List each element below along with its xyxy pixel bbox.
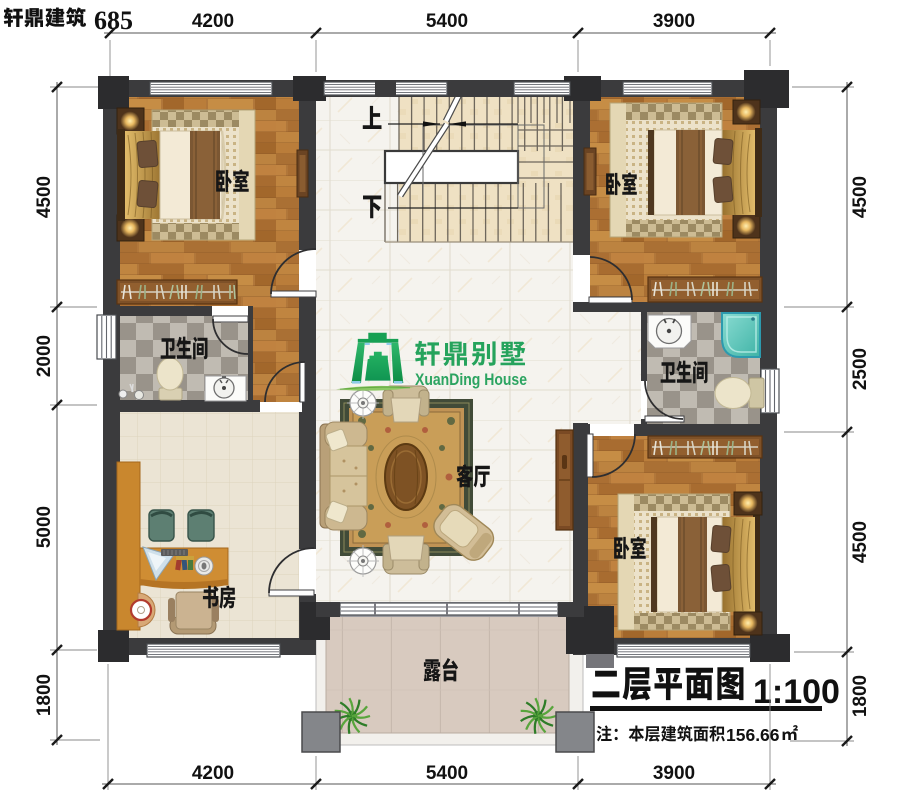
svg-text:1800: 1800	[850, 675, 871, 717]
svg-text:3900: 3900	[653, 11, 695, 32]
svg-text:4500: 4500	[850, 521, 871, 563]
svg-text:5400: 5400	[426, 763, 468, 784]
svg-text:1:100: 1:100	[753, 673, 840, 711]
svg-text:5000: 5000	[34, 506, 55, 548]
svg-text:XuanDing House: XuanDing House	[415, 371, 527, 389]
svg-text:4200: 4200	[192, 763, 234, 784]
svg-text:5400: 5400	[426, 11, 468, 32]
svg-text:2500: 2500	[850, 348, 871, 390]
svg-text:4200: 4200	[192, 11, 234, 32]
svg-text:3900: 3900	[653, 763, 695, 784]
svg-text:4500: 4500	[850, 176, 871, 218]
svg-text:2000: 2000	[34, 335, 55, 377]
svg-text:1800: 1800	[34, 674, 55, 716]
svg-text:4500: 4500	[34, 176, 55, 218]
svg-text:156.66: 156.66	[726, 725, 780, 745]
